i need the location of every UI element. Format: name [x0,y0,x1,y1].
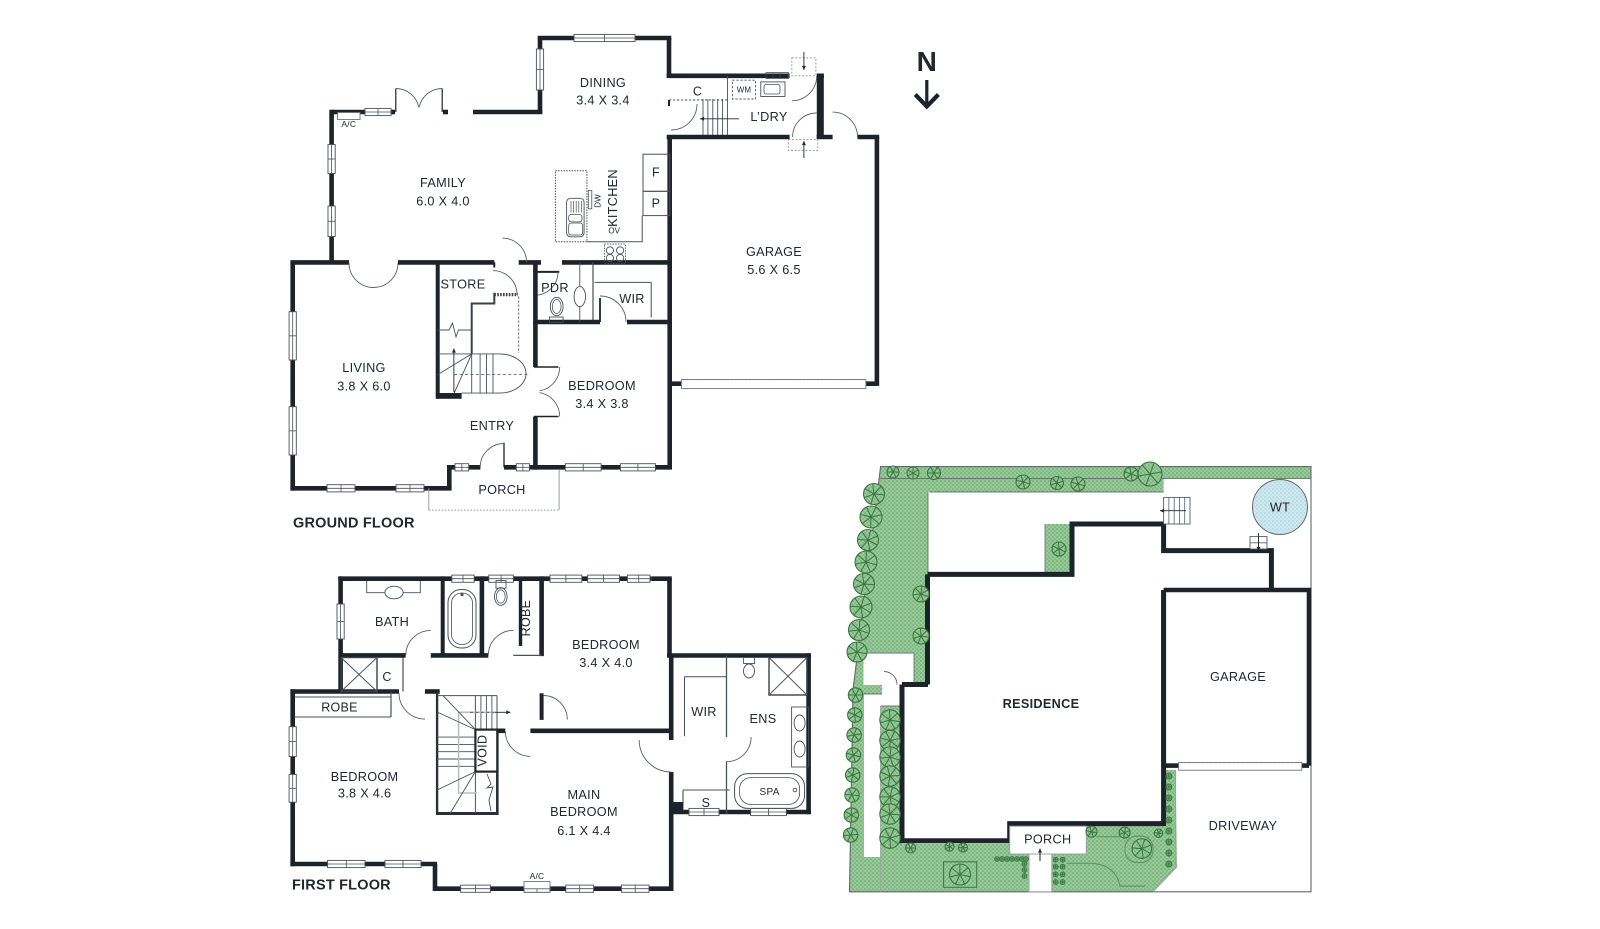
svg-text:6.1 X 4.4: 6.1 X 4.4 [557,824,611,838]
svg-text:BATH: BATH [375,615,409,629]
svg-text:LIVING: LIVING [342,361,385,375]
svg-text:RESIDENCE: RESIDENCE [1003,697,1080,711]
svg-text:3.4 X 3.8: 3.4 X 3.8 [575,397,629,411]
svg-text:PORCH: PORCH [478,483,525,497]
svg-text:A/C: A/C [341,119,356,129]
svg-text:5.6 X 6.5: 5.6 X 6.5 [747,263,801,277]
svg-text:A/C: A/C [530,871,545,881]
svg-text:GROUND FLOOR: GROUND FLOOR [293,516,415,532]
svg-text:DINING: DINING [580,76,626,90]
svg-text:F: F [652,166,660,180]
svg-text:WIR: WIR [619,292,645,306]
svg-text:WM: WM [737,86,752,95]
svg-text:PORCH: PORCH [1024,833,1071,847]
svg-text:VOID: VOID [475,735,489,767]
svg-text:S: S [702,796,711,810]
svg-text:KITCHEN: KITCHEN [606,169,620,227]
svg-text:WIR: WIR [691,705,717,719]
svg-text:3.4 X 3.4: 3.4 X 3.4 [576,94,630,108]
svg-text:GARAGE: GARAGE [1210,670,1266,684]
svg-text:PDR: PDR [541,281,569,295]
svg-text:WT: WT [1270,501,1290,515]
svg-text:BEDROOM: BEDROOM [550,805,618,819]
svg-text:ROBE: ROBE [519,600,533,637]
svg-text:BEDROOM: BEDROOM [568,379,636,393]
svg-text:N: N [917,46,937,77]
svg-text:DW: DW [594,194,603,208]
svg-text:C: C [693,85,702,99]
svg-text:FIRST FLOOR: FIRST FLOOR [292,878,391,894]
svg-text:6.0 X 4.0: 6.0 X 4.0 [416,195,470,209]
svg-text:C: C [382,670,391,684]
svg-text:FAMILY: FAMILY [420,176,466,190]
svg-text:ENTRY: ENTRY [470,419,515,433]
svg-text:ROBE: ROBE [321,701,358,715]
svg-text:SPA: SPA [760,787,780,798]
svg-text:BEDROOM: BEDROOM [572,638,640,652]
svg-text:L’DRY: L’DRY [750,110,787,124]
svg-text:ENS: ENS [750,712,777,726]
svg-text:3.4 X 4.0: 3.4 X 4.0 [579,656,633,670]
svg-text:STORE: STORE [441,278,486,292]
svg-text:3.8 X 4.6: 3.8 X 4.6 [338,787,392,801]
svg-text:P: P [652,197,661,211]
svg-text:MAIN: MAIN [568,788,601,802]
svg-text:3.8 X 6.0: 3.8 X 6.0 [337,380,391,394]
svg-text:GARAGE: GARAGE [746,245,802,259]
svg-text:DRIVEWAY: DRIVEWAY [1209,819,1278,833]
svg-text:BEDROOM: BEDROOM [331,770,399,784]
